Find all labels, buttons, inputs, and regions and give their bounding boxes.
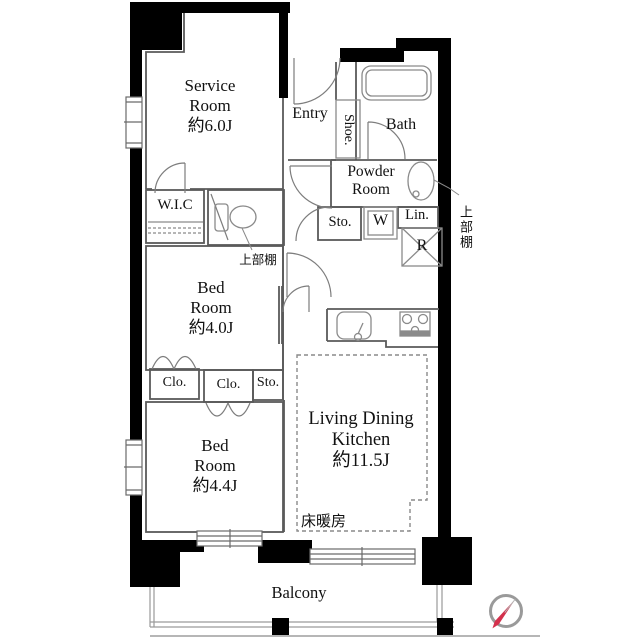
closet2-bifold-door bbox=[206, 403, 250, 416]
toilet-icon bbox=[215, 204, 256, 231]
bath-label: Bath bbox=[372, 116, 430, 134]
wall-left-3 bbox=[130, 495, 142, 545]
service-room-door bbox=[155, 163, 185, 193]
bedroom1-label: Bed Room 約4.0J bbox=[155, 278, 267, 338]
shelf-right-label: 上部棚 bbox=[453, 196, 475, 258]
entry-label: Entry bbox=[282, 105, 338, 123]
balcony-post-left bbox=[272, 618, 289, 635]
floor-plan-drawing bbox=[0, 0, 640, 640]
toilet-door bbox=[211, 194, 228, 240]
shelf-toilet-label: 上部棚 bbox=[230, 249, 286, 268]
wall-corner-bottom-right bbox=[422, 537, 472, 585]
balcony-label: Balcony bbox=[262, 583, 336, 603]
wall-right bbox=[438, 38, 451, 540]
window-left-lower bbox=[124, 440, 142, 495]
balcony-rail-right bbox=[437, 585, 442, 622]
closet1-bifold-door bbox=[152, 357, 196, 370]
floor-plan: Service Room 約6.0J Entry Shoe. Bath Powd… bbox=[0, 0, 640, 640]
bedroom2-name-1: Bed bbox=[159, 436, 271, 456]
ldk-size: 約11.5J bbox=[291, 451, 431, 472]
bedroom2-name-2: Room bbox=[159, 456, 271, 476]
window-left-upper bbox=[124, 97, 142, 148]
service-room-name-1: Service bbox=[150, 76, 270, 96]
window-bedroom2-balcony bbox=[197, 529, 262, 548]
wall-left-2 bbox=[130, 148, 142, 440]
wall-top-bar bbox=[130, 2, 290, 13]
shoe-cabinet-label: Shoe. bbox=[337, 102, 359, 158]
service-room-size: 約6.0J bbox=[150, 116, 270, 136]
wic-label: W.I.C bbox=[147, 197, 203, 214]
bathtub-icon bbox=[362, 66, 431, 100]
wall-bottom-middle bbox=[258, 540, 312, 563]
stove-icon bbox=[400, 312, 430, 336]
ldk-name-1: Living Dining bbox=[291, 409, 431, 430]
storage-lower-label: Sto. bbox=[250, 375, 286, 391]
washer-label: W bbox=[364, 212, 397, 230]
bedroom1-sliding-door bbox=[279, 286, 282, 344]
linen-label: Lin. bbox=[396, 207, 438, 224]
refrigerator-label: R bbox=[402, 237, 442, 255]
bedroom1-name-2: Room bbox=[155, 298, 267, 318]
bedroom2-label: Bed Room 約4.4J bbox=[159, 436, 271, 496]
compass-icon bbox=[490, 596, 521, 630]
balcony-post-right bbox=[437, 618, 453, 635]
powder-room-name-1: Powder bbox=[329, 163, 413, 181]
service-room-name-2: Room bbox=[150, 96, 270, 116]
wall-left-1 bbox=[130, 46, 142, 98]
wall-entry-top bbox=[340, 48, 404, 62]
balcony-rails bbox=[150, 585, 540, 636]
bedroom2-size: 約4.4J bbox=[159, 476, 271, 496]
storage-upper-label: Sto. bbox=[318, 214, 362, 231]
wic-hanger-rails bbox=[148, 228, 203, 233]
wall-service-right bbox=[279, 11, 288, 98]
entry-front-door bbox=[294, 58, 340, 104]
floor-heating-label: 床暖房 bbox=[301, 510, 346, 531]
closet2-label: Clo. bbox=[204, 377, 253, 393]
powder-room-name-2: Room bbox=[329, 181, 413, 199]
bedroom1-size: 約4.0J bbox=[155, 318, 267, 338]
window-ldk-balcony bbox=[310, 547, 415, 566]
balcony-rail-left bbox=[150, 587, 154, 627]
ldk-label: Living Dining Kitchen 約11.5J bbox=[291, 409, 431, 472]
service-room-label: Service Room 約6.0J bbox=[150, 76, 270, 136]
powder-room-label: Powder Room bbox=[329, 163, 413, 199]
ldk-name-2: Kitchen bbox=[291, 430, 431, 451]
balcony-rail-bottom bbox=[150, 622, 454, 627]
bedroom1-name-1: Bed bbox=[155, 278, 267, 298]
wall-corner-bottom-left bbox=[130, 540, 180, 587]
kitchen-sink-icon bbox=[337, 312, 371, 341]
closet1-label: Clo. bbox=[150, 375, 199, 391]
powder-room-door bbox=[290, 166, 332, 208]
